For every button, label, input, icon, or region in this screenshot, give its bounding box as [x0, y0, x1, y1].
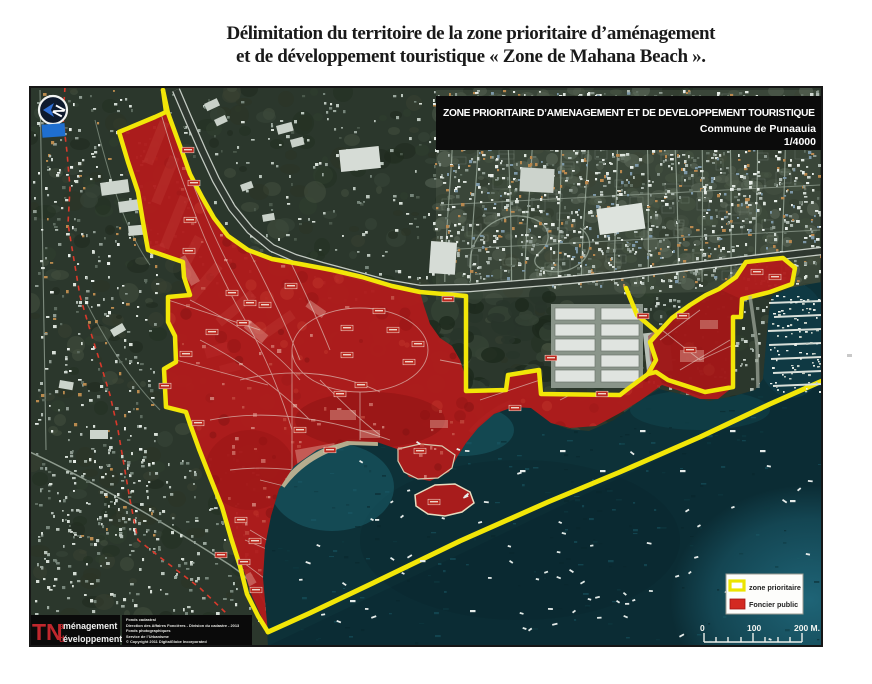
svg-text:Commune de Punaauia: Commune de Punaauia	[700, 123, 816, 135]
svg-text:Fonds cadastral: Fonds cadastral	[126, 617, 156, 622]
svg-text:200 M.: 200 M.	[794, 623, 820, 633]
svg-text:ZONE PRIORITAIRE D’AMENAGEMENT: ZONE PRIORITAIRE D’AMENAGEMENT ET DE DEV…	[443, 108, 815, 119]
svg-text:0: 0	[700, 623, 705, 633]
svg-text:Foncier public: Foncier public	[749, 600, 798, 609]
svg-text:ménagement: ménagement	[63, 621, 117, 631]
svg-text:Délimitation du territoire de: Délimitation du territoire de la zone pr…	[227, 23, 717, 44]
svg-text:© Copyright 2011 DigitalGlobe: © Copyright 2011 DigitalGlobe Incorporat…	[126, 639, 207, 644]
svg-text:1/4000: 1/4000	[784, 136, 816, 148]
svg-text:Fonds photographiques: Fonds photographiques	[126, 628, 171, 633]
svg-text:et de développement touristiq: et de développement touristique « Zone d…	[236, 46, 706, 67]
svg-text:éveloppement: éveloppement	[63, 634, 122, 644]
svg-text:zone prioritaire: zone prioritaire	[749, 583, 801, 592]
svg-text:100: 100	[747, 623, 761, 633]
